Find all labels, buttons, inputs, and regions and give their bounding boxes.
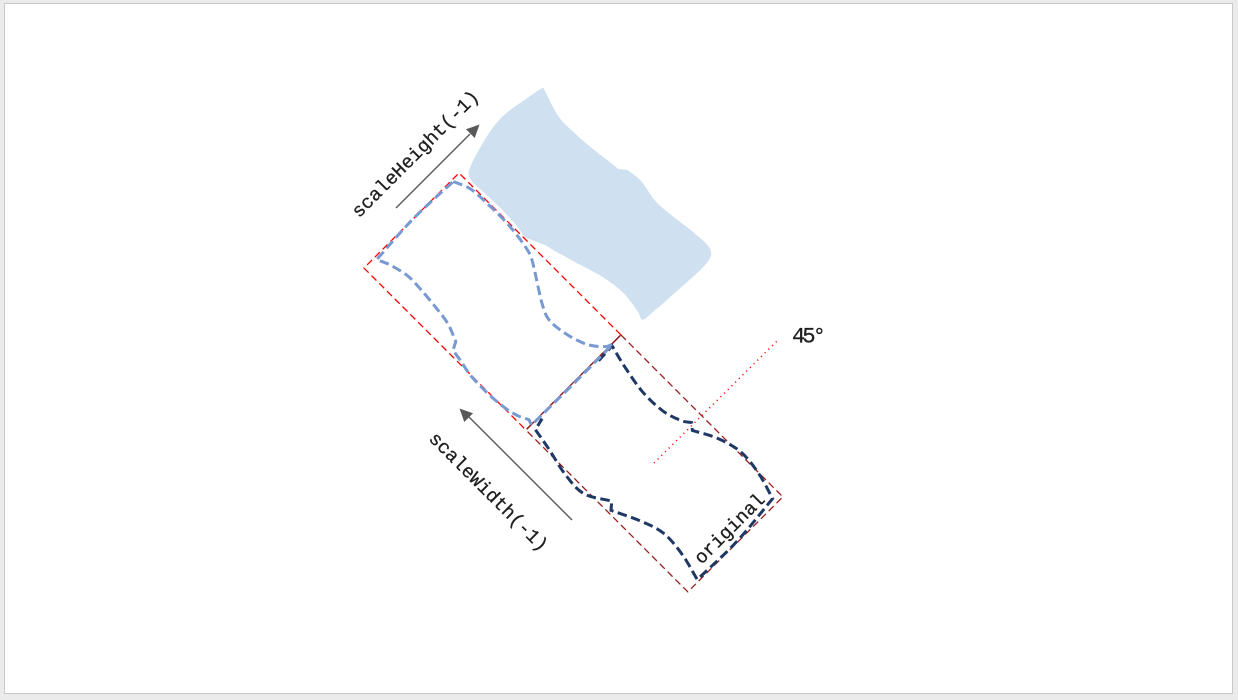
svg-text:45°: 45° [792,325,826,350]
